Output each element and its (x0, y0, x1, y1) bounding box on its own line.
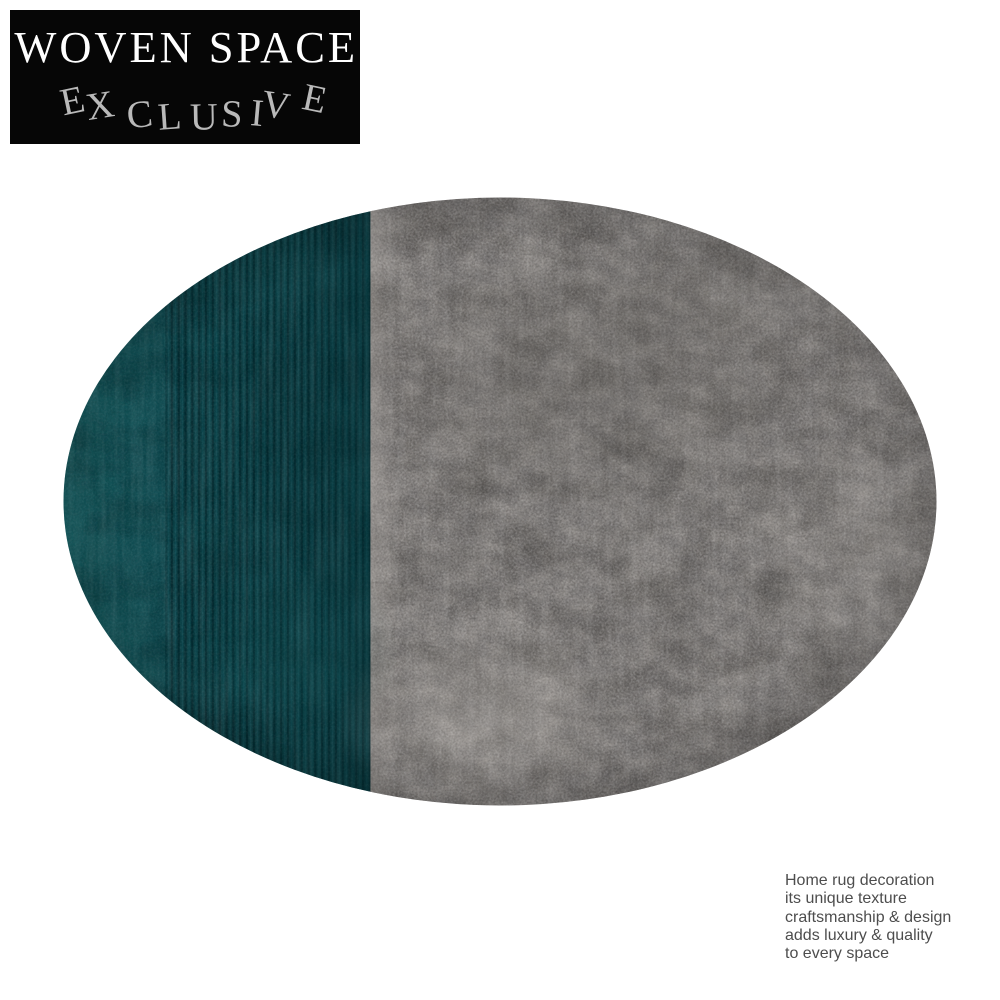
svg-text:U: U (190, 96, 219, 138)
svg-text:WOVEN SPACE: WOVEN SPACE (14, 22, 358, 72)
svg-text:S: S (220, 93, 243, 136)
svg-text:E: E (299, 76, 331, 122)
svg-text:L: L (156, 95, 182, 139)
svg-text:C: C (125, 93, 155, 138)
svg-text:X: X (83, 83, 117, 129)
svg-text:V: V (259, 83, 293, 129)
svg-text:E: E (57, 78, 89, 124)
